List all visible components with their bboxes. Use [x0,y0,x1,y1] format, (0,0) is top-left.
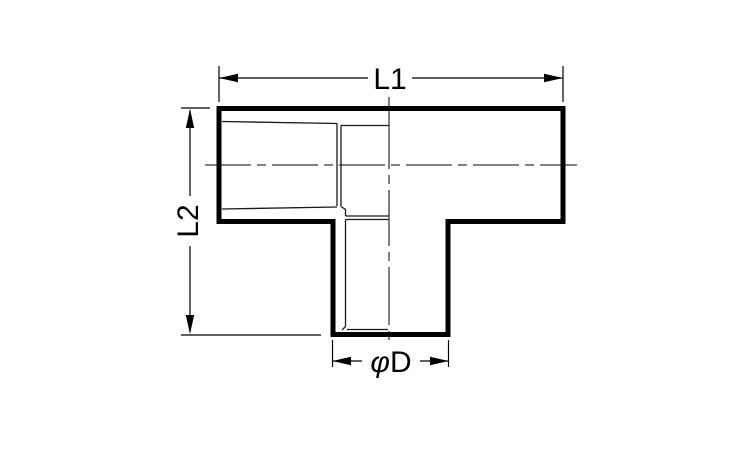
dia-letter: D [390,346,412,379]
dia-label: φD [370,346,411,379]
l1-dimension: L1 [219,63,563,102]
socket-step [341,207,346,217]
l2-arrow-bottom [186,315,194,334]
dia-arrow-right [430,357,449,365]
l2-arrow-top [186,109,194,128]
socket-detail-bottom [342,220,388,331]
tee-outline [219,109,563,335]
socket-inner-top-line [222,122,337,124]
branch-socket-step [342,327,346,331]
socket-detail-left [222,122,389,220]
drawing-canvas: L1 L2 φD [0,0,750,450]
l1-label: L1 [373,63,406,96]
l2-label: L2 [172,204,205,237]
diameter-dimension: φD [333,340,449,379]
l1-arrow-right [544,74,563,82]
tee-fitting-drawing: L1 L2 φD [0,0,750,450]
phi-symbol: φ [370,346,390,379]
l1-arrow-left [219,74,238,82]
dia-arrow-left [333,357,352,365]
socket-inner-bottom-line [222,207,337,209]
